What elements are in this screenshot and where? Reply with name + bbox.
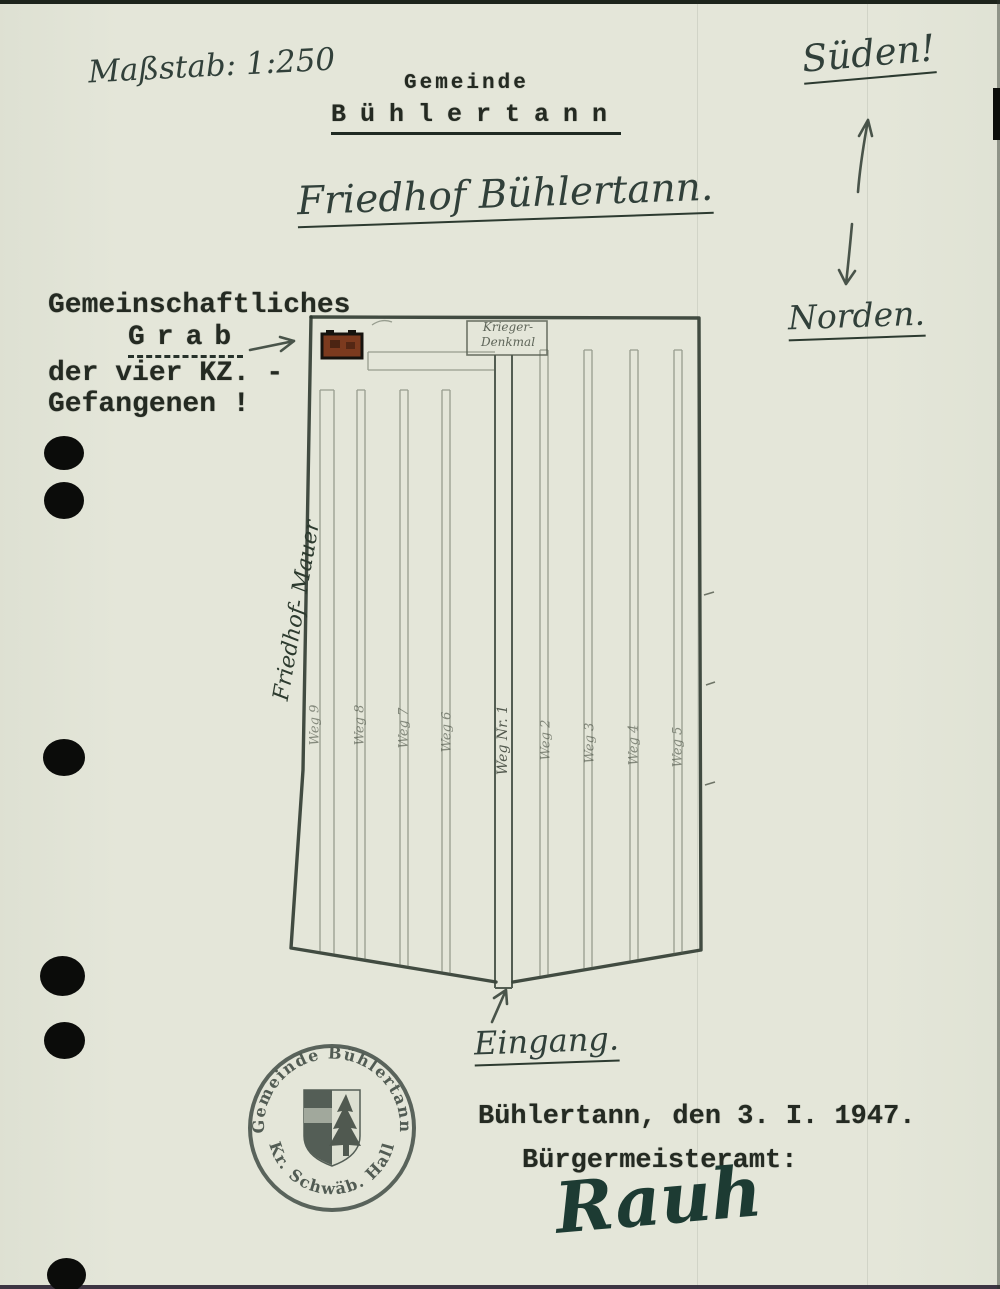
war-memorial-label-line2: Denkmal xyxy=(465,335,551,350)
scan-edge-bottom xyxy=(0,1285,1000,1289)
scanned-cemetery-plan-document: Maßstab: 1:250 Gemeinde Bühlertann Fried… xyxy=(0,0,1000,1289)
hole-punch xyxy=(47,1258,86,1289)
path-label: Weg 7 xyxy=(397,708,412,749)
hole-punch xyxy=(40,956,85,996)
cemetery-wall-outline xyxy=(311,317,701,982)
wall-tick xyxy=(704,592,715,785)
pencil-squiggle xyxy=(372,321,392,325)
entrance-label: Eingang. xyxy=(473,1019,619,1066)
header-org: Gemeinde xyxy=(404,72,529,95)
path-label: Weg 5 xyxy=(671,727,686,768)
grave-row-strip xyxy=(400,390,408,967)
main-path-lines xyxy=(495,355,512,988)
main-path-label: Weg Nr. 1 xyxy=(495,705,511,775)
grave-row-strip xyxy=(320,390,334,954)
grave-row-strip xyxy=(442,390,450,974)
cemetery-wall-outline-left xyxy=(291,317,496,982)
plan-sketch-svg xyxy=(260,295,720,1005)
scale-note: Maßstab: 1:250 xyxy=(87,42,336,91)
war-memorial-label-line1: Krieger- xyxy=(465,320,551,335)
grave-row-strip xyxy=(630,350,638,961)
path-label: Weg 9 xyxy=(308,705,323,746)
paper-fold-line xyxy=(867,0,868,1289)
hole-punch xyxy=(43,739,85,776)
grave-row-strip xyxy=(584,350,592,969)
hole-punch xyxy=(44,436,84,470)
hole-punch xyxy=(44,482,84,519)
path-label: Weg 4 xyxy=(627,725,642,766)
scan-edge-top xyxy=(0,0,1000,4)
path-label: Weg 8 xyxy=(353,705,368,746)
mayor-signature: Rauh xyxy=(552,1149,765,1250)
grave-note-line4: Gefangenen ! xyxy=(48,389,250,420)
scan-artifact-blob xyxy=(993,88,1000,140)
arrow-up-south xyxy=(858,120,872,192)
place-date: Bühlertann, den 3. I. 1947. xyxy=(478,1102,915,1132)
hole-punch xyxy=(44,1022,85,1059)
compass-south-label: Süden! xyxy=(800,26,937,84)
grave-row-strip xyxy=(674,350,682,955)
grave-note-line2: Grab xyxy=(128,322,243,358)
stamp-coat-of-arms xyxy=(304,1090,361,1166)
header-org-name: Bühlertann xyxy=(331,100,621,135)
grave-row-strip xyxy=(540,350,548,976)
path-label: Weg 3 xyxy=(583,723,598,764)
arrow-down-north xyxy=(839,224,855,284)
war-memorial-label: Krieger- Denkmal xyxy=(465,320,551,350)
compass-north-label: Norden. xyxy=(787,294,925,342)
path-label: Weg 6 xyxy=(440,712,455,753)
municipal-stamp: Gemeinde Bühlertann * Kr. Schwäb. Hall * xyxy=(240,1040,425,1220)
kz-grave-marker xyxy=(322,330,362,358)
path-label: Weg 2 xyxy=(539,720,554,761)
grave-note-line3: der vier KZ. - xyxy=(48,358,283,389)
page-title: Friedhof Bühlertann. xyxy=(296,165,714,228)
cemetery-plan-drawing: Krieger- Denkmal Friedhof- Mauer Weg 9 W… xyxy=(260,295,720,1005)
grave-row-strip xyxy=(357,390,365,960)
